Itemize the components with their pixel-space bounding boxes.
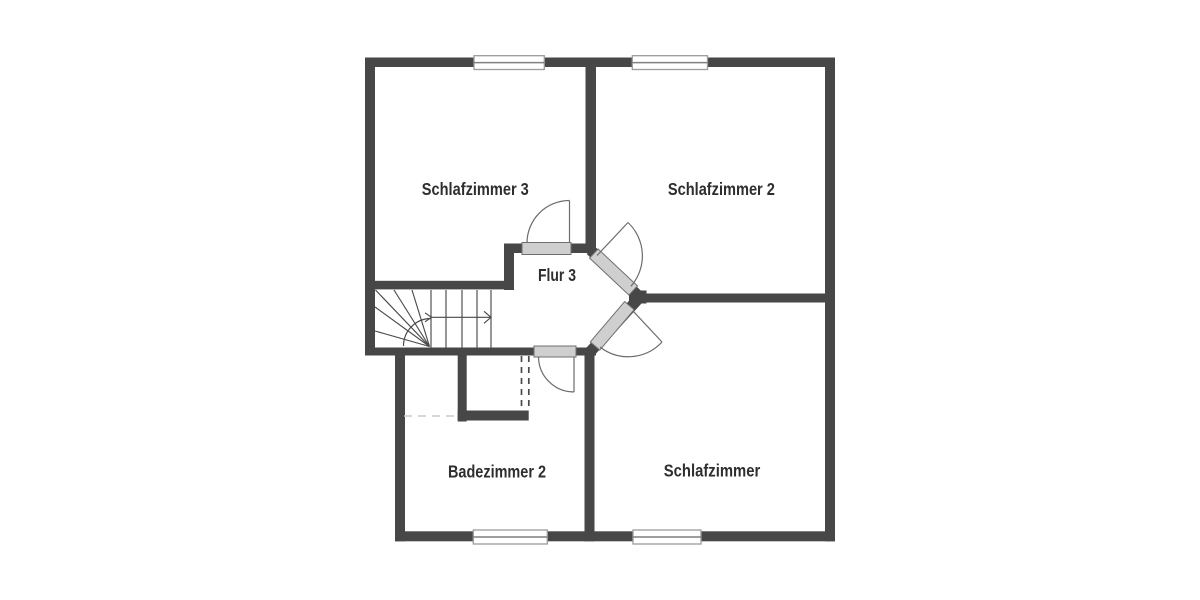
- svg-text:Schlafzimmer: Schlafzimmer: [664, 461, 761, 481]
- svg-text:Schlafzimmer 2: Schlafzimmer 2: [668, 179, 775, 199]
- svg-text:Flur 3: Flur 3: [538, 265, 576, 285]
- svg-text:Schlafzimmer 3: Schlafzimmer 3: [422, 179, 529, 199]
- svg-text:Badezimmer 2: Badezimmer 2: [448, 461, 546, 481]
